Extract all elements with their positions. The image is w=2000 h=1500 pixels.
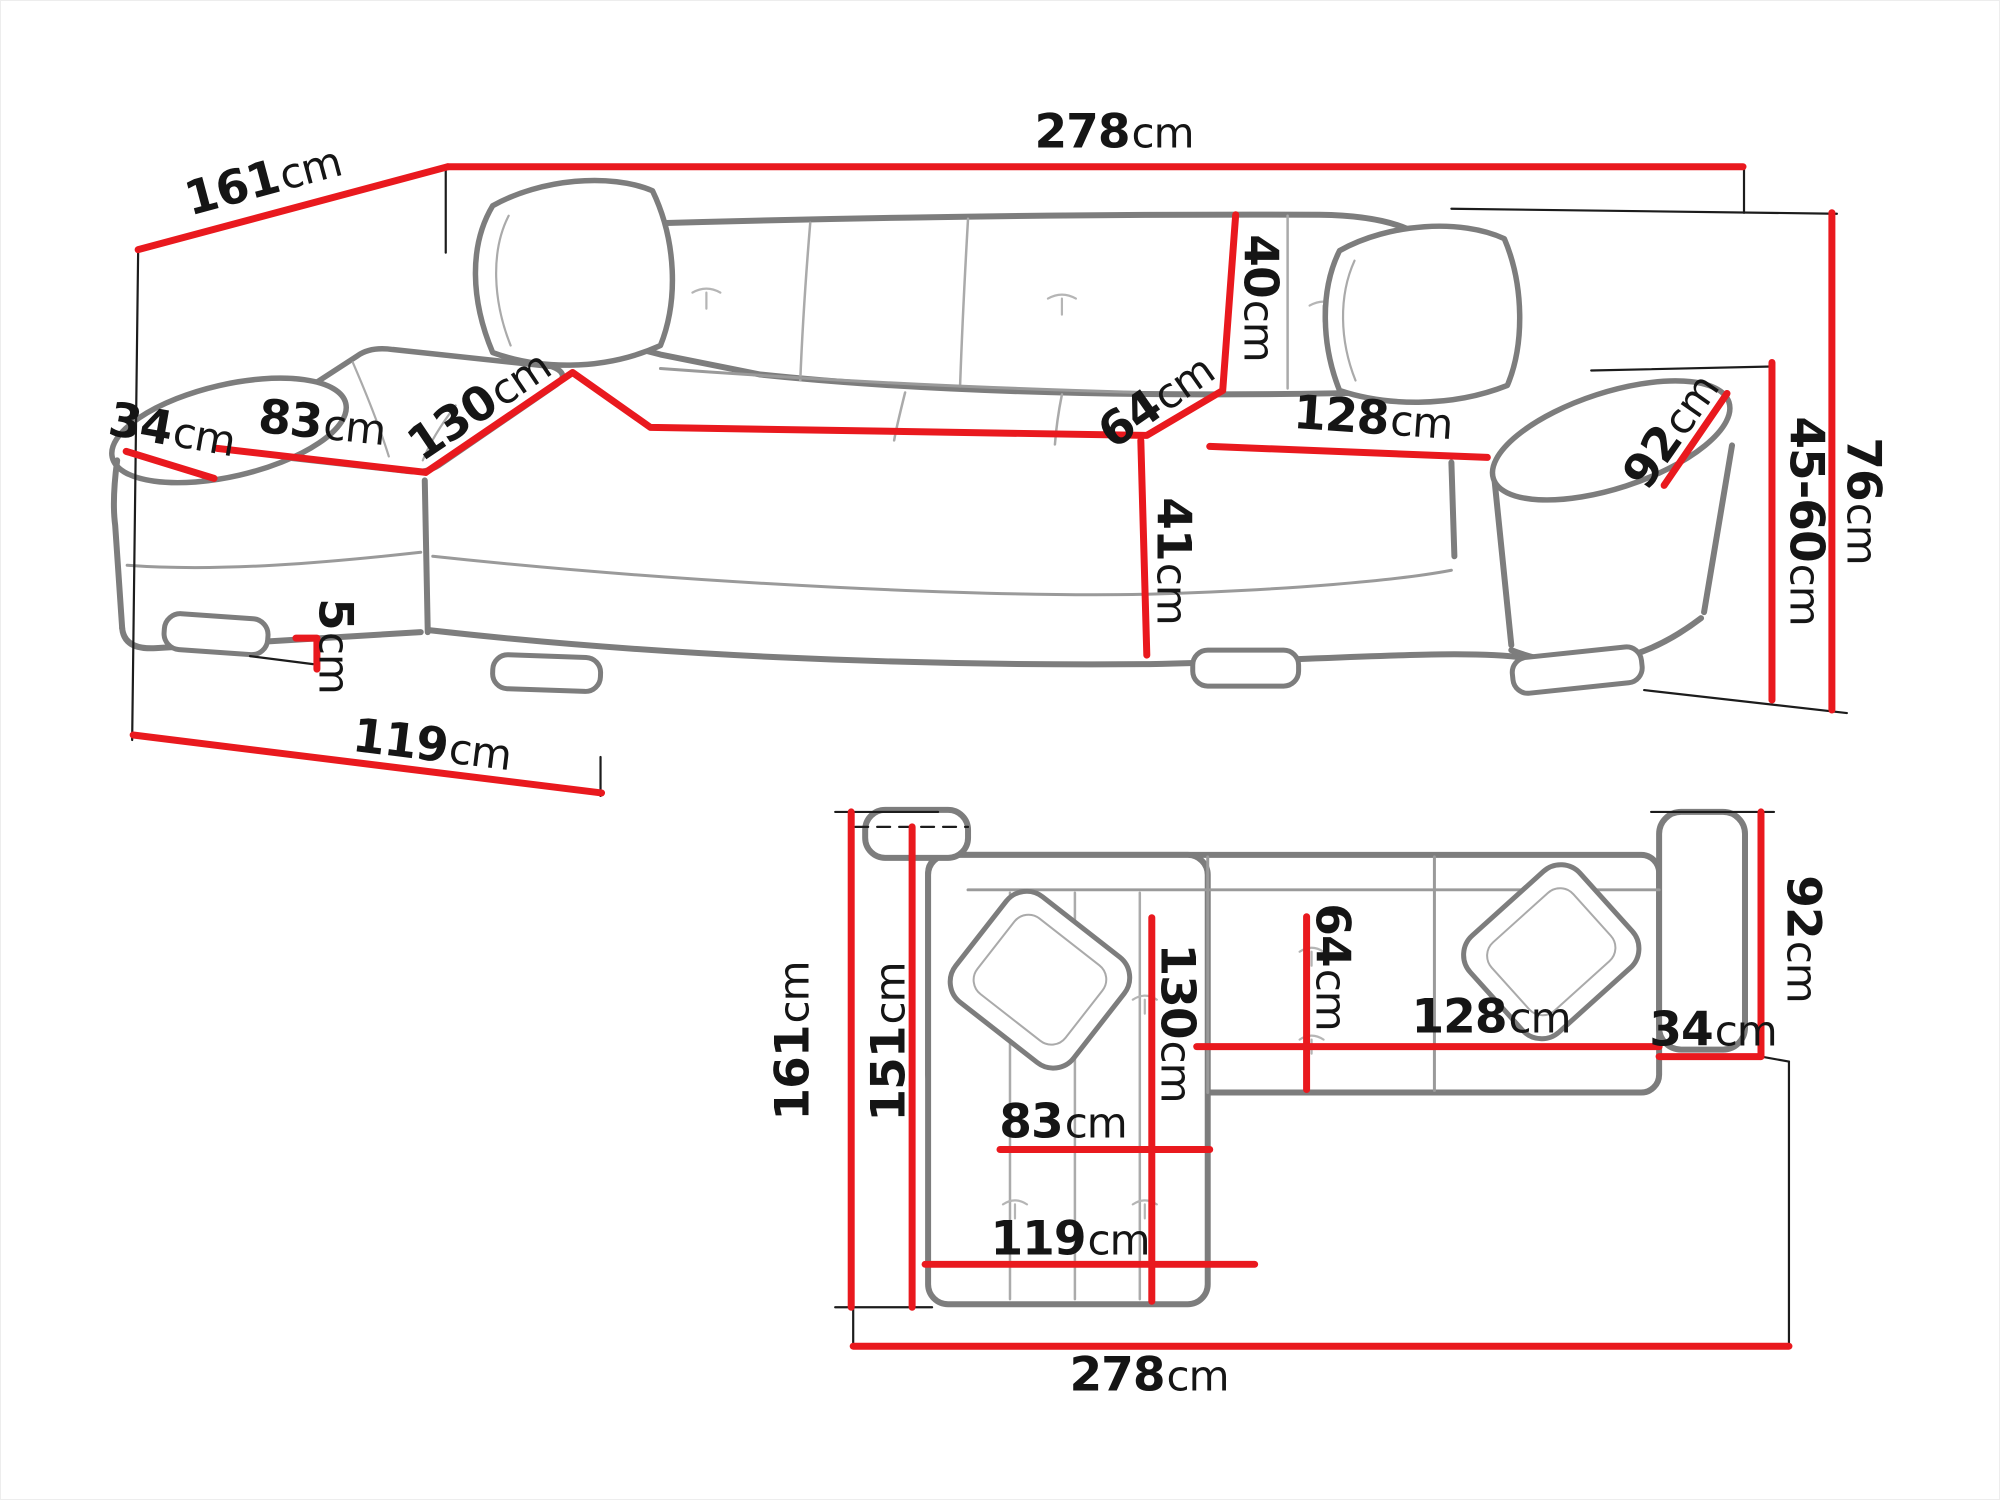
sofa-line-art xyxy=(1,1,1999,1499)
dimline-161 xyxy=(138,167,448,250)
plan-right-armrest xyxy=(1659,812,1745,1050)
right-armrest-perspective xyxy=(1479,357,1744,525)
dimline-41 xyxy=(1141,440,1147,655)
dimline-5 xyxy=(296,638,317,669)
pillow-right-perspective xyxy=(1325,226,1519,402)
diagram-canvas: 161cm 278cm 34cm 83cm 130cm 64cm 40cm 12… xyxy=(0,0,2000,1500)
dimline-128 xyxy=(1210,446,1488,457)
perspective-sofa-outline xyxy=(102,180,1744,694)
left-armrest-perspective xyxy=(102,359,356,502)
dimline-119 xyxy=(133,735,601,793)
pillow-left-perspective xyxy=(475,180,672,365)
plan-left-armrest xyxy=(865,810,968,858)
